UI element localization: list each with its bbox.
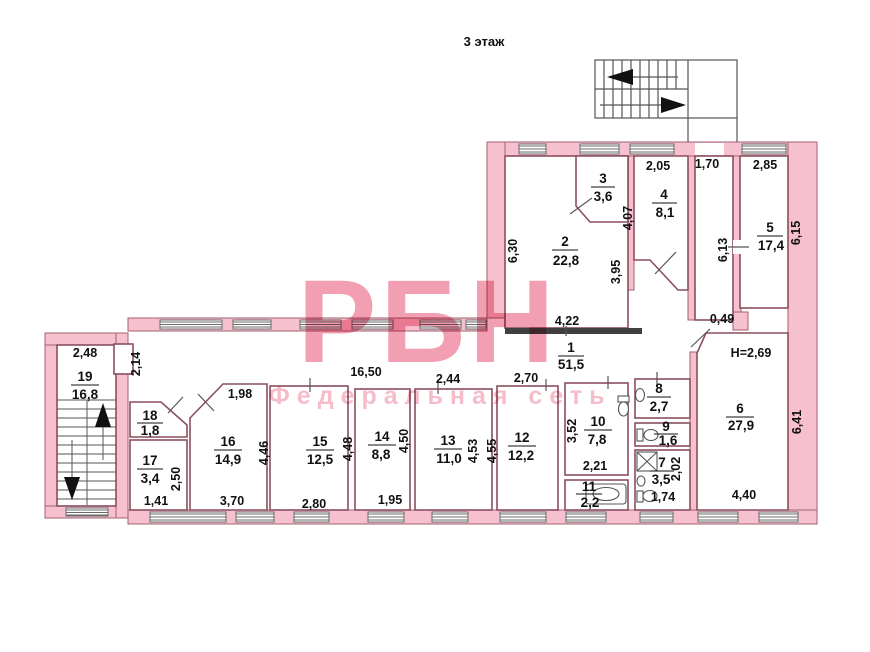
- dim-label: 1,74: [651, 490, 675, 504]
- sink-icon: [637, 476, 645, 486]
- room-label: 11,0: [436, 451, 462, 466]
- room-4: [634, 156, 688, 290]
- room-label: 2,7: [650, 399, 669, 414]
- sink-icon: [636, 389, 645, 402]
- room-label: 12: [514, 430, 529, 445]
- room-label: 8,8: [372, 447, 391, 462]
- page-title: 3 этаж: [464, 34, 505, 49]
- watermark-brand: РБН: [298, 256, 559, 388]
- floor-plan-canvas: РБН Федеральная сеть 3 этаж 1 51,5 2 22,…: [0, 0, 870, 652]
- dim-label: 2,80: [302, 497, 326, 511]
- dim-label: 3,95: [609, 260, 623, 284]
- room-label: 11: [582, 479, 597, 494]
- dim-label: 2,44: [436, 372, 460, 386]
- dim-label: 1,70: [695, 157, 719, 171]
- dim-label: 1,41: [144, 494, 168, 508]
- dim-label: 4,46: [257, 441, 271, 465]
- room-label: 3,4: [141, 471, 160, 486]
- room-label: 9: [662, 419, 670, 434]
- watermark-subtitle: Федеральная сеть: [268, 382, 611, 410]
- dim-label: 4,07: [621, 206, 635, 230]
- room-label: 4: [660, 187, 668, 202]
- room-label: 10: [590, 414, 605, 429]
- dim-label: 1,98: [228, 387, 252, 401]
- room-label: 19: [77, 369, 92, 384]
- shower-icon: [637, 452, 657, 471]
- room-label: 8: [655, 381, 663, 396]
- toilet-icon: [637, 429, 658, 441]
- dim-label: 2,14: [129, 352, 143, 376]
- dim-label: 3,70: [220, 494, 244, 508]
- room-label: 2,2: [581, 495, 600, 510]
- room-label: 18: [142, 408, 158, 423]
- room-label: 16,8: [72, 387, 99, 402]
- room-label: 3,5: [652, 472, 671, 487]
- dim-label: 4,48: [341, 437, 355, 461]
- dim-label: 1,95: [378, 493, 402, 507]
- room-label: 12,2: [508, 448, 534, 463]
- room-label: 1,6: [659, 433, 678, 448]
- toilet-icon: [618, 396, 629, 416]
- dim-label: 4,22: [555, 314, 579, 328]
- top-staircase: [595, 60, 737, 142]
- room-label: 7: [658, 455, 666, 470]
- room-label: 13: [440, 433, 456, 448]
- room-label: 51,5: [558, 357, 585, 372]
- room-label: 12,5: [307, 452, 334, 467]
- dim-label: 16,50: [350, 365, 381, 379]
- dim-label: 2,85: [753, 158, 777, 172]
- dim-label: 4,53: [466, 439, 480, 463]
- dim-label: 6,13: [716, 238, 730, 262]
- room-label: 17: [142, 453, 157, 468]
- room-label: 1,8: [141, 423, 160, 438]
- room-label: 5: [766, 220, 774, 235]
- dim-label: 4,50: [397, 429, 411, 453]
- room-5: [740, 156, 788, 308]
- room-label: 14,9: [215, 452, 241, 467]
- floor-plan-page: РБН Федеральная сеть 3 этаж 1 51,5 2 22,…: [0, 0, 870, 652]
- room-label: 3: [599, 171, 607, 186]
- dim-label: 6,30: [506, 239, 520, 263]
- dim-label: 2,02: [669, 457, 683, 481]
- dim-label: 0,49: [710, 312, 734, 326]
- ceiling-height-label: H=2,69: [731, 346, 772, 360]
- room-label: 17,4: [758, 238, 785, 253]
- dim-label: 6,41: [790, 410, 804, 434]
- room-label: 14: [374, 429, 390, 444]
- room-label: 22,8: [553, 253, 580, 268]
- dim-label: 4,55: [485, 439, 499, 463]
- room-label: 1: [567, 340, 575, 355]
- room-label: 7,8: [588, 432, 607, 447]
- dim-label: 2,70: [514, 371, 538, 385]
- dim-label: 2,48: [73, 346, 97, 360]
- room-label: 6: [736, 401, 744, 416]
- room-label: 27,9: [728, 418, 754, 433]
- dim-label: 2,50: [169, 467, 183, 491]
- dim-label: 2,05: [646, 159, 670, 173]
- dim-label: 4,40: [732, 488, 756, 502]
- room-label: 3,6: [594, 189, 613, 204]
- dim-label: 6,15: [789, 221, 803, 245]
- dim-label: 2,21: [583, 459, 607, 473]
- dim-label: 3,52: [565, 419, 579, 443]
- room-label: 15: [312, 434, 328, 449]
- room-label: 16: [220, 434, 236, 449]
- room-label: 2: [561, 234, 569, 249]
- room-label: 8,1: [656, 205, 675, 220]
